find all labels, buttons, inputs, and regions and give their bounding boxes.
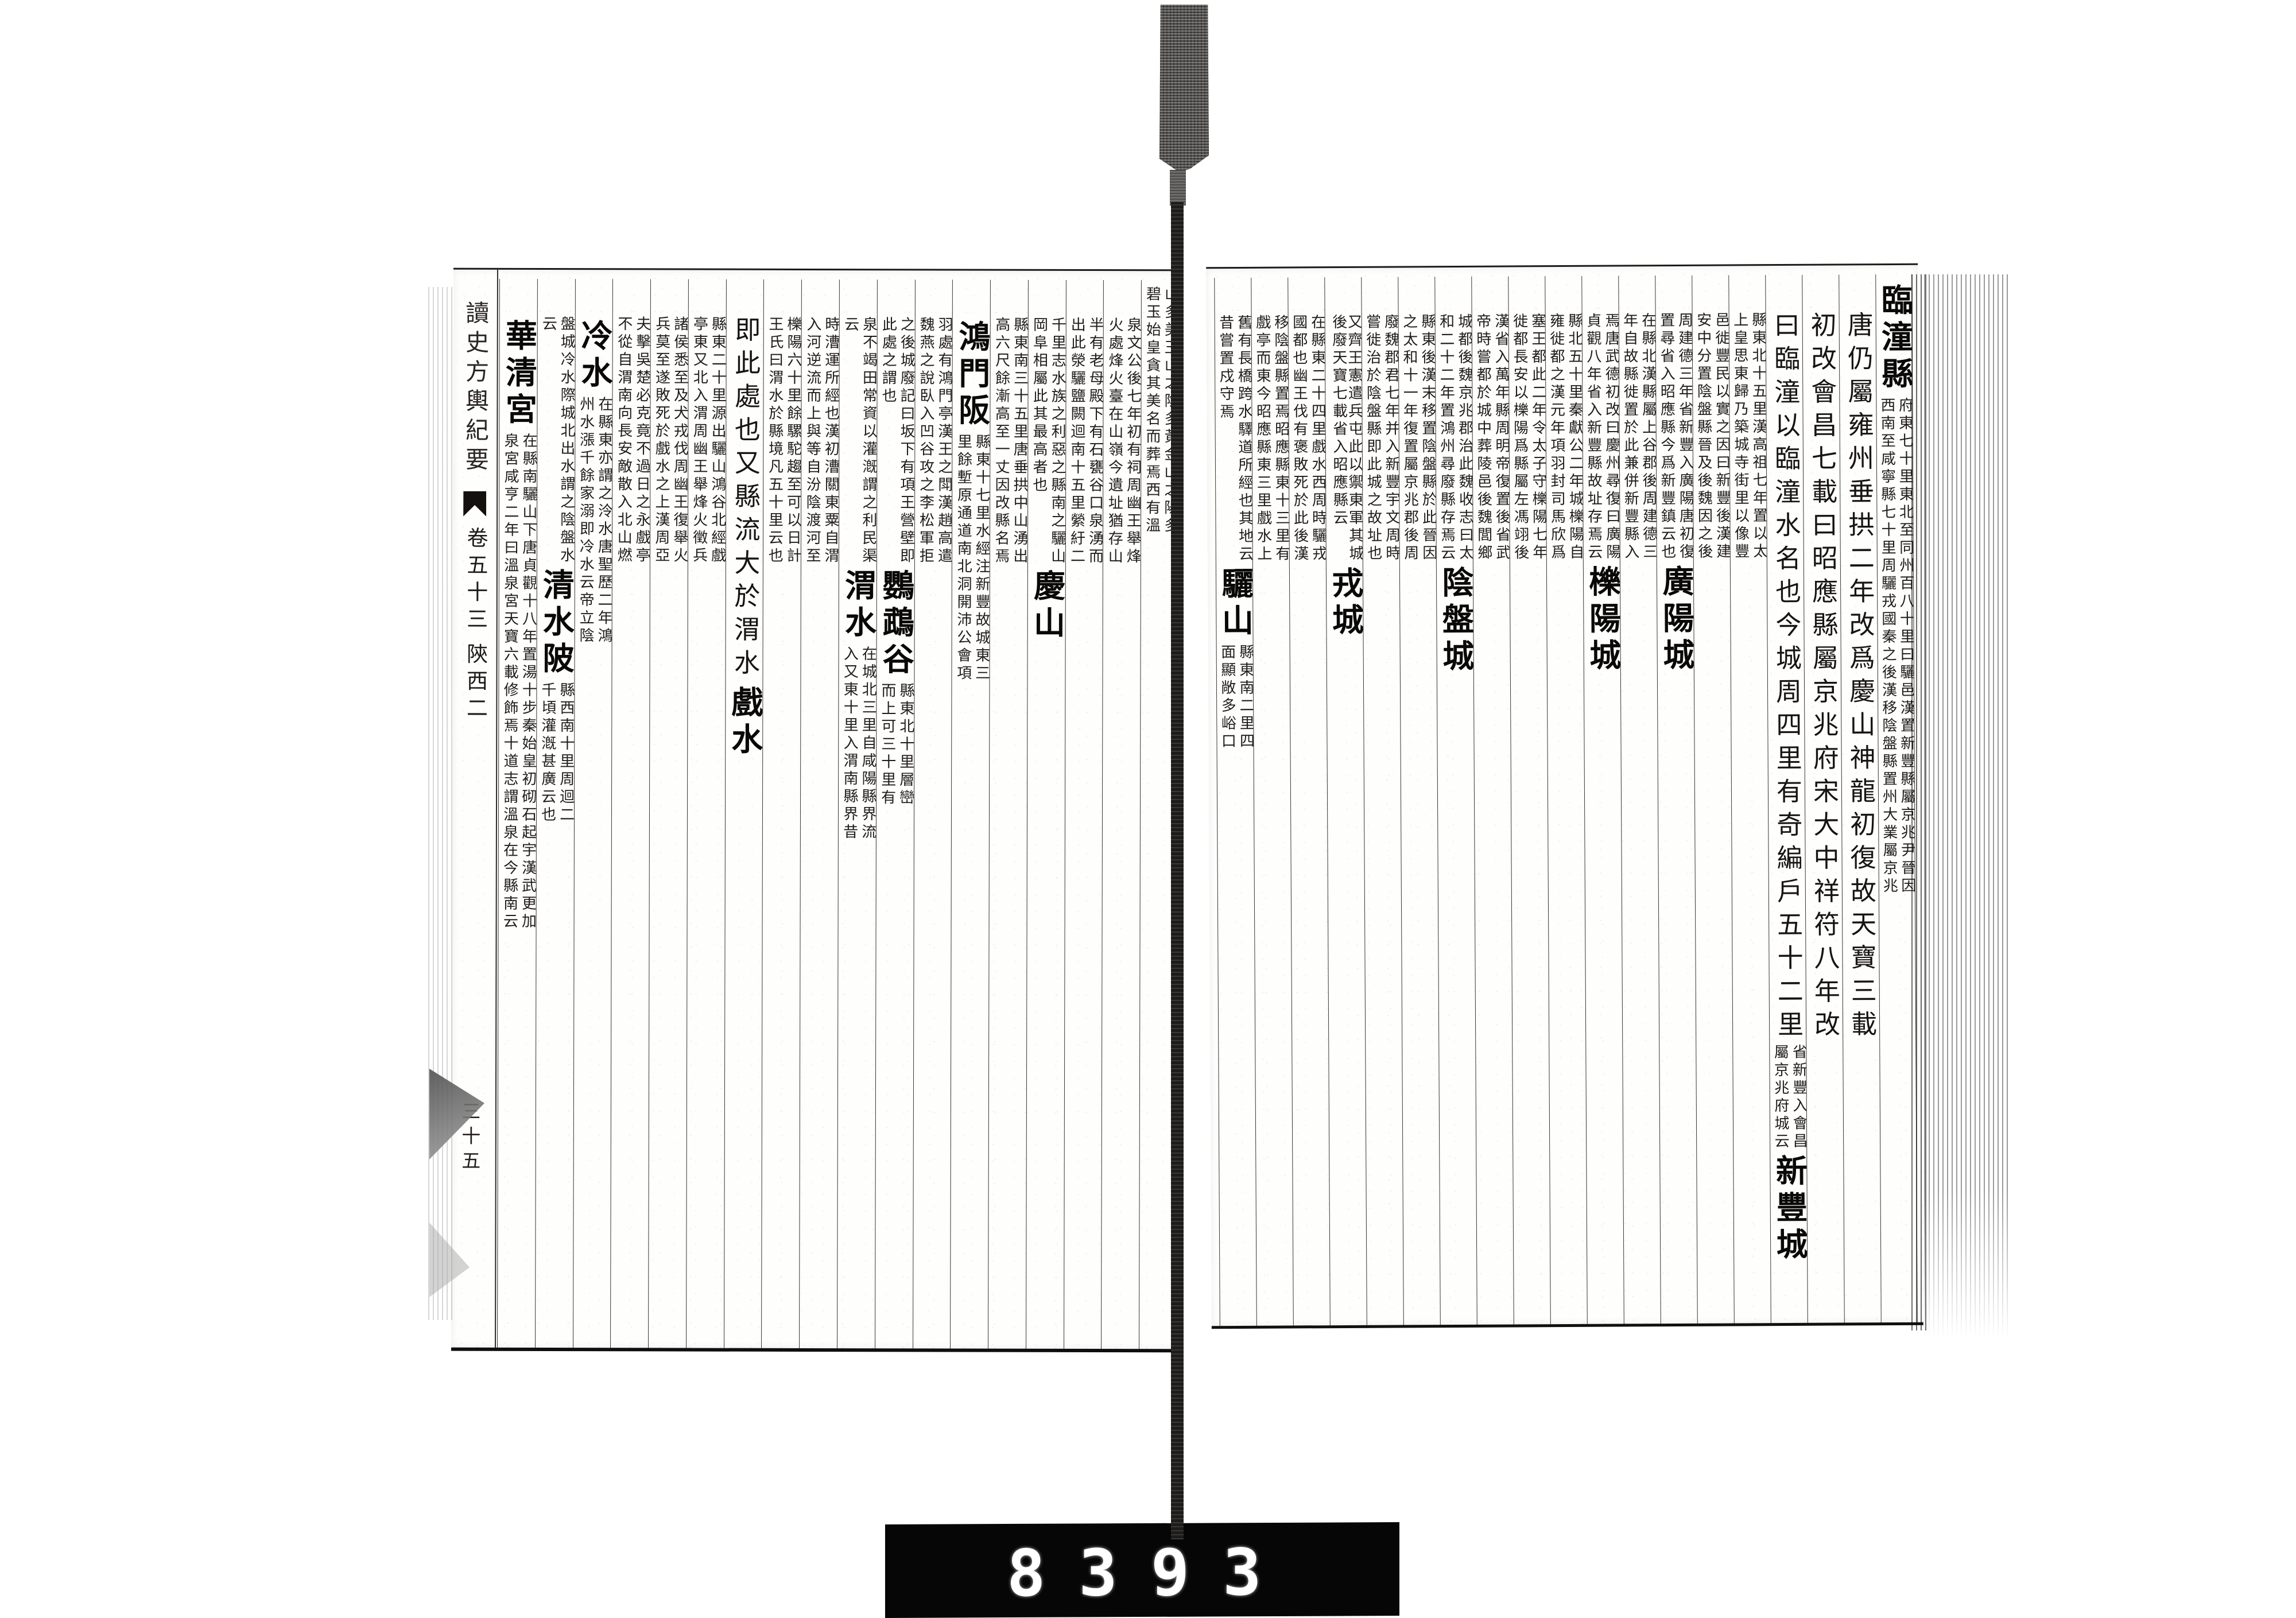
annotation-subline: 屬京兆府城云 (1770, 1044, 1788, 1151)
annotation-subline: 後廢天寶七載省入昭應縣云 (1331, 314, 1347, 563)
annotation-note: 漢省入萬年縣周明帝復置後省武帝時嘗都於城中葬陵邑後魏閭鄉 (1472, 313, 1510, 562)
annotation-subline: 羽處有鴻門亭漢王之閗漢趙高遣 (933, 316, 952, 565)
annotation-note: 縣西南十里周迴二千頃灌漑甚廣云也 (537, 682, 574, 824)
text-column: 焉唐武德初改曰慶州尋復曰廣陽貞觀八年省入新豐縣故址存焉云櫟陽城 (1581, 276, 1624, 1324)
left-page-sheet: 讀史方輿紀要 卷五十三 陝西二 三十五 山多美玉山之陰多黃金山之陽多碧玉始皇貪其… (451, 268, 1180, 1353)
text-column: 半有老母殿下有石甕谷口泉湧而出此滎驪鹽闕迴南十五里縈紆二 (1064, 280, 1104, 1349)
annotation-note: 千里志水族之利惡之縣南之驪山岡阜相屬此其最高者也 (1028, 317, 1066, 566)
text-column: 塞王都此二年令太子守櫟陽七年徙都長安以櫟陽爲縣屬左馮翊後 (1508, 276, 1550, 1324)
main-text: 即此處也又縣流大於渭水 (731, 316, 758, 682)
annotation-subline: 廢魏郡君七年并入新豐宇文周時 (1380, 314, 1399, 563)
entry-header: 冷水 (578, 319, 610, 393)
annotation-subline: 縣東後漢末移置陰盤縣於此晉因 (1417, 313, 1436, 562)
annotation-note: 縣東北十五里漢高祖七年置以太上皇思東歸乃築城寺街里以像豐 (1729, 312, 1767, 561)
annotation-note: 廢魏郡君七年并入新豐宇文周時嘗徙治於陰盤縣即此城之故址也 (1362, 314, 1399, 563)
annotation-subline: 半有老母殿下有石甕谷口泉湧而 (1084, 317, 1103, 566)
frame-counter-plate: 8393 (885, 1522, 1399, 1618)
annotation-subline: 里餘塹原通道南北洞開沛公會項 (953, 434, 971, 683)
annotation-subline: 在城北三里自咸陽縣界流 (858, 646, 876, 841)
annotation-subline: 盤城冷水際城北出水謂之陰盤水 (556, 316, 575, 565)
annotation-subline: 而上可三十里有 (877, 682, 895, 807)
annotation-subline: 城都後魏京兆郡治此魏收志曰太 (1454, 313, 1473, 562)
annotation-subline: 魏燕之說臥入凹谷攻之李松軍拒 (915, 316, 933, 565)
center-fold-strip: 讀史方輿紀要 卷五十三 陝西二 三十五 (451, 270, 498, 1348)
annotation-note: 縣東南三十五里唐垂拱中山湧出高六尺餘漸高至一丈因改縣名焉 (990, 317, 1028, 566)
annotation-note: 盤城冷水際城北出水謂之陰盤水云 (537, 316, 575, 565)
annotation-subline: 縣東北十里層巒 (895, 682, 913, 807)
book-title: 讀史方輿紀要 (457, 301, 492, 476)
fishtail-mark-icon (463, 491, 486, 517)
entry-header: 新豐城 (1773, 1154, 1805, 1264)
text-column: 夫擊吳楚必克竟不過日之永戲亭不從自渭南向長安敵散入北山燃 (610, 279, 650, 1348)
annotation-subline: 入河逆流而上與等自汾陰渡河至 (802, 316, 820, 565)
annotation-subline: 和二十二年置鴻州尋廢縣存焉云 (1436, 313, 1455, 562)
text-column: 漢省入萬年縣周明帝復置後省武帝時嘗都於城中葬陵邑後魏閭鄉 (1471, 277, 1514, 1325)
annotation-note: 在縣東亦謂之泠水唐聖歷二年鴻州水漲千餘家溺即冷水云帝立陰 (575, 396, 612, 645)
annotation-note: 半有老母殿下有石甕谷口泉湧而出此滎驪鹽闕迴南十五里縈紆二 (1066, 317, 1104, 566)
annotation-note: 在城北三里自咸陽縣界流入又東十里入渭南縣界昔 (839, 646, 876, 841)
annotation-subline: 泉不竭田常資以灌漑謂之利民渠 (858, 316, 876, 565)
annotation-note: 羽處有鴻門亭漢王之閗漢趙高遣魏燕之說臥入凹谷攻之李松軍拒 (914, 316, 952, 565)
entry-header: 華清宮 (502, 319, 534, 429)
text-column: 之後城廢記曰坂下有項王營壁即此處之謂也鸚鵡谷縣東北十里層巒而上可三十里有 (875, 280, 915, 1348)
text-column: 縣東二十里源出驪山鴻谷北經戲亭東又北入渭周幽王舉烽火徵兵 (686, 280, 726, 1348)
entry-header: 廣陽城 (1659, 565, 1692, 675)
annotation-subline: 兵莫至遂敗死於戲水之上漢周亞 (651, 316, 669, 565)
annotation-note: 縣東後漢末移置陰盤縣於此晉因之太和十一年復置屬京兆郡後周 (1399, 313, 1436, 562)
right-page-sheet: 臨潼縣府東七十里東北至同州百八十里西南至咸寧縣七十里周驪戎國秦曰驪邑漢置新豐縣屬… (1206, 263, 1923, 1329)
left-page-text-columns: 山多美玉山之陰多黃金山之陽多碧玉始皇貪其美名而葬焉西有溫泉文公後七年初有祠周幽王… (497, 270, 1179, 1349)
annotation-subline: 移陰盤縣置焉昭應縣東十三里有 (1270, 315, 1289, 564)
entry-header: 清水陂 (540, 568, 571, 678)
annotation-note: 又齊王憲遣兵屯此以禦東軍其城後廢天寶七載省入昭應縣云 (1325, 314, 1363, 563)
annotation-subline: 火處烽火臺在山嶺今遺址猶存山 (1104, 317, 1122, 566)
spine-bar (1171, 202, 1184, 1539)
volume-label: 卷五十三 (459, 527, 490, 635)
annotation-subline: 縣東二十里源出驪山鴻谷北經戲 (707, 316, 726, 565)
text-column: 在縣北漢縣屬上谷郡後周建德三年自故縣徙置於此兼併新豐縣入 (1618, 276, 1661, 1324)
annotation-note: 泉不竭田常資以灌漑謂之利民渠云 (839, 316, 877, 565)
annotation-note: 縣北五十里秦獻公二年城櫟陽自雍徙都之漢元年項羽封司馬欣爲 (1546, 313, 1583, 562)
entry-header: 陰盤城 (1439, 566, 1471, 676)
annotation-subline: 高六尺餘漸高至一丈因改縣名焉 (991, 317, 1009, 566)
annotation-subline: 安中分置陰盤縣晉及後魏因之後 (1693, 312, 1712, 561)
annotation-subline: 十步秦始皇初砌石起宇漢武更加 (517, 682, 536, 931)
annotation-subline: 不從自渭南向長安敵散入北山燃 (613, 316, 631, 565)
text-column: 曰臨潼以臨潼水名也今城周四里有奇編戶五十二里省新豐入會昌屬京兆府城云新豐城 (1765, 275, 1808, 1323)
annotation-note: 邑徙豐民以實之因曰新豐後漢建安中分置陰盤縣晉及後魏因之後 (1693, 312, 1730, 561)
annotation-subline: 千頃灌漑甚廣云也 (537, 682, 556, 824)
entry-header: 驪山 (1219, 567, 1251, 641)
annotation-subline: 之太和十一年復置屬京兆郡後周 (1399, 313, 1418, 562)
annotation-subline: 縣西南十里周迴二 (556, 682, 574, 824)
annotation-subline: 縣東南二里四 (1235, 644, 1254, 751)
text-column: 泉不竭田常資以灌漑謂之利民渠云渭水在城北三里自咸陽縣界流入又東十里入渭南縣界昔 (837, 280, 877, 1348)
annotation-subline: 櫟陽六十里餘騾駝趨至可以日計 (782, 316, 801, 565)
annotation-subline: 焉唐武德初改曰慶州尋復曰廣陽 (1601, 312, 1620, 561)
annotation-note: 諸侯悉至及犬戎伐周幽王復舉火兵莫至遂敗死於戲水之上漢周亞 (650, 316, 688, 565)
annotation-subline: 塞王都此二年令太子守櫟陽七年 (1527, 313, 1546, 562)
annotation-subline: 國都也幽王伐有褒敗死於此後漢 (1289, 314, 1308, 563)
annotation-subline: 時漕運所經也漢初漕關東粟自渭 (820, 316, 839, 565)
entry-header: 鸚鵡谷 (879, 569, 911, 679)
annotation-subline: 亭東又北入渭周幽王舉烽火徵兵 (689, 316, 707, 565)
text-column: 初改會昌七載曰昭應縣屬京兆府宋大中祥符八年改 (1802, 274, 1844, 1322)
annotation-subline: 千里志水族之利惡之縣南之驪山 (1047, 317, 1065, 566)
text-column: 千里志水族之利惡之縣南之驪山岡阜相屬此其最高者也慶山 (1026, 280, 1066, 1349)
text-column: 時漕運所經也漢初漕關東粟自渭入河逆流而上與等自汾陰渡河至 (799, 280, 839, 1348)
scan-noise-left-edge (428, 287, 453, 1320)
text-column: 臨潼縣府東七十里東北至同州百八十里西南至咸寧縣七十里周驪戎國秦曰驪邑漢置新豐縣屬… (1875, 274, 1918, 1322)
annotation-note: 在縣北漢縣屬上谷郡後周建德三年自故縣徙置於此兼併新豐縣入 (1619, 312, 1657, 561)
annotation-subline: 夫擊吳楚必克竟不過日之永戲亭 (631, 316, 650, 565)
annotation-subline: 舊有長橋跨水驛道所經也其地云 (1234, 315, 1252, 564)
text-column: 冷水在縣東亦謂之泠水唐聖歷二年鴻州水漲千餘家溺即冷水云帝立陰 (573, 279, 613, 1348)
annotation-note: 之後城廢記曰坂下有項王營壁即此處之謂也 (877, 316, 915, 565)
main-text: 初改會昌七載曰昭應縣屬京兆府宋大中祥符八年改 (1808, 312, 1838, 1044)
annotation-note: 櫟陽六十里餘騾駝趨至可以日計王氏曰渭水於縣境凡五十里云也 (763, 316, 801, 565)
annotation-subline: 云 (538, 316, 556, 565)
annotation-subline: 周建德三年省新豐入廣陽唐初復 (1674, 312, 1693, 561)
annotation-subline: 出此滎驪鹽闕迴南十五里縈紆二 (1066, 317, 1084, 566)
annotation-note: 時漕運所經也漢初漕關東粟自渭入河逆流而上與等自汾陰渡河至 (801, 316, 839, 565)
text-column: 舊有長橋跨水驛道所經也其地云昔嘗置戍守焉驪山縣東南二里四面顯敞多峪口 (1214, 278, 1256, 1326)
annotation-subline: 雍徙都之漢元年項羽封司馬欣爲 (1546, 313, 1565, 562)
annotation-subline: 在縣北漢縣屬上谷郡後周建德三 (1638, 312, 1657, 561)
annotation-subline: 泉文公後七年初有祠周幽王舉烽 (1122, 317, 1141, 566)
book-clamp-neck (1170, 170, 1186, 205)
annotation-subline: 年自故縣徙置於此兼併新豐縣入 (1619, 312, 1638, 561)
right-page-text-columns: 臨潼縣府東七十里東北至同州百八十里西南至咸寧縣七十里周驪戎國秦曰驪邑漢置新豐縣屬… (1213, 265, 1918, 1326)
annotation-subline: 王氏曰渭水於縣境凡五十里云也 (764, 316, 782, 565)
annotation-subline: 泉宮咸亨二年曰溫泉宮天寶六載 (499, 433, 518, 682)
text-column: 邑徙豐民以實之因曰新豐後漢建安中分置陰盤縣晉及後魏因之後 (1692, 275, 1734, 1323)
annotation-subline: 碧玉始皇貪其美名而葬焉西有溫 (1142, 286, 1160, 535)
text-column: 泉文公後七年初有祠周幽王舉烽火處烽火臺在山嶺今遺址猶存山 (1101, 280, 1141, 1349)
text-column: 縣東南三十五里唐垂拱中山湧出高六尺餘漸高至一丈因改縣名焉 (988, 280, 1028, 1349)
entry-header: 慶山 (1030, 569, 1062, 643)
annotation-subline: 此處之謂也 (878, 316, 896, 565)
scan-noise-right-edge (1924, 274, 2010, 1340)
text-column: 縣北五十里秦獻公二年城櫟陽自雍徙都之漢元年項羽封司馬欣爲 (1545, 276, 1587, 1324)
annotation-subline: 之後城廢記曰坂下有項王營壁即 (896, 316, 914, 565)
entry-header: 渭水 (841, 569, 873, 642)
text-column: 城都後魏京兆郡治此魏收志曰太和二十二年置鴻州尋廢縣存焉云陰盤城 (1434, 277, 1477, 1325)
annotation-subline: 戲亭而東今昭應縣東三里戲水上 (1252, 315, 1271, 564)
annotation-subline: 徙都長安以櫟陽爲縣屬左馮翊後 (1509, 313, 1528, 562)
annotation-subline: 曰驪邑漢置新豐縣屬京兆尹晉因 (1896, 646, 1915, 895)
annotation-note: 縣東二十里源出驪山鴻谷北經戲亭東又北入渭周幽王舉烽火徵兵 (688, 316, 726, 565)
annotation-subline: 又齊王憲遣兵屯此以禦東軍其城 (1347, 314, 1363, 563)
annotation-subline: 上皇思東歸乃築城寺街里以像豐 (1729, 312, 1748, 561)
annotation-subline: 帝時嘗都於城中葬陵邑後魏閭鄉 (1472, 313, 1491, 562)
text-column: 周建德三年省新豐入廣陽唐初復置尋省入昭應縣今爲新豐鎮云也廣陽城 (1655, 276, 1697, 1324)
annotation-note: 曰驪邑漢置新豐縣屬京兆尹晉因之後漢移陰盤縣置州大業屬京兆 (1878, 646, 1915, 895)
annotation-note: 焉唐武德初改曰慶州尋復曰廣陽貞觀八年省入新豐縣故址存焉云 (1583, 312, 1620, 561)
annotation-subline: 昔嘗置戍守焉 (1215, 315, 1234, 564)
annotation-subline: 貞觀八年省入新豐縣故址存焉云 (1583, 313, 1601, 562)
annotation-note: 周建德三年省新豐入廣陽唐初復置尋省入昭應縣今爲新豐鎮云也 (1656, 312, 1693, 561)
annotation-note: 在縣南驪山下唐貞觀十八年置湯泉宮咸亨二年曰溫泉宮天寶六載 (499, 433, 537, 682)
annotation-subline: 省新豐入會昌 (1788, 1044, 1806, 1151)
scanned-book-spread: { "banxin": { "title": "讀史方輿紀要", "juan":… (0, 0, 2296, 1617)
annotation-note: 移陰盤縣置焉昭應縣東十三里有戲亭而東今昭應縣東三里戲水上 (1252, 315, 1289, 564)
annotation-note: 十步秦始皇初砌石起宇漢武更加修飾焉十道志謂溫泉在今縣南云 (498, 682, 536, 931)
frame-counter-digits: 8393 (1007, 1535, 1295, 1611)
annotation-subline: 修飾焉十道志謂溫泉在今縣南云 (499, 682, 517, 931)
text-column: 移陰盤縣置焉昭應縣東十三里有戲亭而東今昭應縣東三里戲水上 (1251, 278, 1293, 1326)
entry-header: 鴻門阪 (956, 320, 987, 430)
text-column: 華清宮在縣南驪山下唐貞觀十八年置湯泉宮咸亨二年曰溫泉宮天寶六載十步秦始皇初砌石起… (497, 279, 537, 1348)
text-column: 盤城冷水際城北出水謂之陰盤水云清水陂縣西南十里周迴二千頃灌漑甚廣云也 (535, 279, 575, 1348)
entry-header: 戲水 (728, 686, 760, 759)
annotation-subline: 之後漢移陰盤縣置州大業屬京兆 (1878, 646, 1897, 895)
annotation-note: 縣東南二里四面顯敞多峪口 (1217, 644, 1254, 751)
annotation-subline: 邑徙豐民以實之因曰新豐後漢建 (1711, 312, 1730, 561)
annotation-note: 在縣東二十四里戲水西周時驪戎國都也幽王伐有褒敗死於此後漢 (1289, 314, 1326, 563)
entry-header: 戎城 (1329, 567, 1361, 640)
main-text: 唐仍屬雍州垂拱二年改爲慶山神龍初復故天寶三載 (1845, 311, 1875, 1043)
section-label: 陝西二 (459, 643, 490, 724)
annotation-subline: 縣東北十五里漢高祖七年置以太 (1748, 312, 1767, 561)
annotation-note: 舊有長橋跨水驛道所經也其地云昔嘗置戍守焉 (1215, 315, 1252, 564)
text-column: 櫟陽六十里餘騾駝趨至可以日計王氏曰渭水於縣境凡五十里云也 (761, 280, 801, 1348)
annotation-subline: 在縣南驪山下唐貞觀十八年置湯 (518, 433, 536, 682)
annotation-subline: 云 (840, 316, 858, 565)
text-column: 羽處有鴻門亭漢王之閗漢趙高遣魏燕之說臥入凹谷攻之李松軍拒 (913, 280, 953, 1348)
annotation-subline: 入又東十里入渭南縣界昔 (839, 646, 858, 841)
annotation-subline: 置尋省入昭應縣今爲新豐鎮云也 (1656, 312, 1675, 561)
text-column: 又齊王憲遣兵屯此以禦東軍其城後廢天寶七載省入昭應縣云 戎城 (1324, 277, 1367, 1325)
text-column: 廢魏郡君七年并入新豐宇文周時嘗徙治於陰盤縣即此城之故址也 (1361, 277, 1403, 1325)
text-column: 唐仍屬雍州垂拱二年改爲慶山神龍初復故天寶三載 (1839, 274, 1881, 1322)
annotation-subline: 縣東十七里水經注新豐故城東三 (971, 434, 990, 683)
annotation-subline: 在縣東二十四里戲水西周時驪戎 (1307, 314, 1326, 563)
annotation-subline: 嘗徙治於陰盤縣即此城之故址也 (1362, 314, 1381, 563)
text-column: 在縣東二十四里戲水西周時驪戎國都也幽王伐有褒敗死於此後漢 (1287, 277, 1330, 1325)
entry-header: 臨潼縣 (1878, 284, 1910, 394)
annotation-note: 塞王都此二年令太子守櫟陽七年徙都長安以櫟陽爲縣屬左馮翊後 (1509, 313, 1546, 562)
text-column: 縣東北十五里漢高祖七年置以太上皇思東歸乃築城寺街里以像豐 (1728, 275, 1771, 1323)
entry-header: 櫟陽城 (1586, 565, 1618, 676)
annotation-subline: 漢省入萬年縣周明帝復置後省武 (1491, 313, 1510, 562)
annotation-note: 縣東北十里層巒而上可三十里有 (876, 682, 914, 807)
text-column: 諸侯悉至及犬戎伐周幽王復舉火兵莫至遂敗死於戲水之上漢周亞 (648, 279, 688, 1348)
annotation-note: 城都後魏京兆郡治此魏收志曰太和二十二年置鴻州尋廢縣存焉云 (1436, 313, 1473, 562)
text-column: 縣東後漢末移置陰盤縣於此晉因之太和十一年復置屬京兆郡後周 (1398, 277, 1440, 1325)
text-column: 即此處也又縣流大於渭水戲水 (724, 280, 764, 1348)
annotation-note: 泉文公後七年初有祠周幽王舉烽火處烽火臺在山嶺今遺址猶存山 (1103, 317, 1141, 566)
text-column: 鴻門阪縣東十七里水經注新豐故城東三里餘塹原通道南北洞開沛公會項 (950, 280, 990, 1348)
annotation-subline: 西南至咸寧縣七十里周驪戎國秦 (1876, 397, 1895, 646)
annotation-subline: 在縣東亦謂之泠水唐聖歷二年鴻 (594, 396, 612, 645)
annotation-subline: 岡阜相屬此其最高者也 (1029, 317, 1047, 566)
main-text: 曰臨潼以臨潼水名也今城周四里有奇編戶五十二里 (1771, 312, 1801, 1044)
annotation-note: 縣東十七里水經注新豐故城東三里餘塹原通道南北洞開沛公會項 (952, 433, 990, 682)
annotation-subline: 面顯敞多峪口 (1217, 644, 1235, 751)
annotation-subline: 州水漲千餘家溺即冷水云帝立陰 (575, 396, 594, 645)
annotation-note: 府東七十里東北至同州百八十里西南至咸寧縣七十里周驪戎國秦 (1876, 397, 1913, 646)
annotation-subline: 縣北五十里秦獻公二年城櫟陽自 (1564, 313, 1583, 562)
book-clamp-top (1159, 5, 1209, 172)
annotation-subline: 縣東南三十五里唐垂拱中山湧出 (1009, 317, 1027, 566)
annotation-subline: 府東七十里東北至同州百八十里 (1895, 397, 1914, 646)
annotation-note: 夫擊吳楚必克竟不過日之永戲亭不從自渭南向長安敵散入北山燃 (612, 316, 650, 565)
annotation-subline: 諸侯悉至及犬戎伐周幽王復舉火 (669, 316, 688, 565)
annotation-note: 省新豐入會昌屬京兆府城云 (1770, 1044, 1806, 1151)
